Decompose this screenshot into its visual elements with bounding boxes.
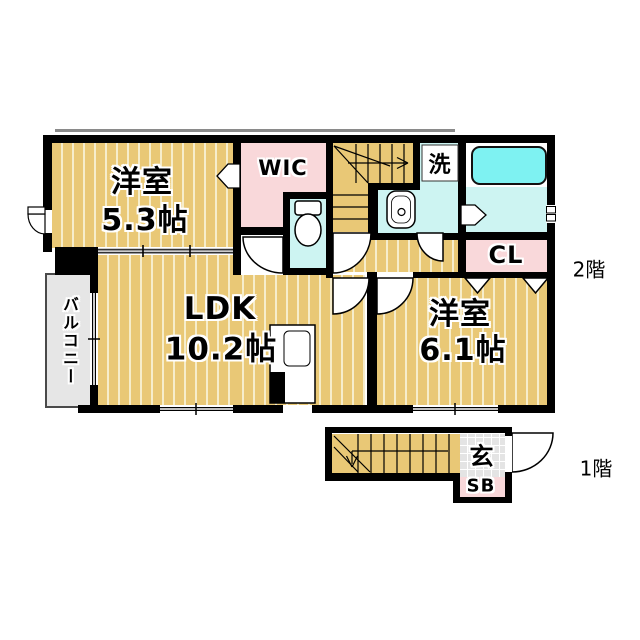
window-ldk-south <box>160 403 233 415</box>
ldk-size: 10.2帖 <box>165 324 278 369</box>
west-small-door <box>28 207 52 234</box>
plan-glyphs <box>0 0 640 640</box>
laundry-label: 洗 <box>428 147 451 179</box>
window-bedroom61-south <box>413 403 498 415</box>
washbasin-icon <box>387 191 415 228</box>
entrance-door-gap <box>505 436 512 472</box>
bathtub-icon <box>472 147 546 184</box>
door-arc-entrance <box>512 433 553 472</box>
toilet-icon <box>295 201 321 246</box>
ldk-name: LDK <box>184 291 257 327</box>
bedroom-5-3-size: 5.3帖 <box>101 195 188 239</box>
floor-plan: 洋室 5.3帖 WIC 洗 CL LDK 10.2帖 洋室 6.1帖 バルコニー… <box>0 0 640 640</box>
stairs-1f-icon <box>334 434 449 473</box>
entrance-genkan-label: 玄 <box>470 437 495 472</box>
door-arc-under-stairs <box>333 233 371 273</box>
door-arc-ldk <box>333 278 369 314</box>
second-floor-tag: 2階 <box>573 254 606 283</box>
bathroom-vent-window <box>546 205 556 223</box>
wic-opening-arrow-icon <box>217 164 240 188</box>
door-arc-bedroom61 <box>377 278 413 314</box>
window-balcony-door <box>88 293 100 385</box>
shoe-box-label: SB <box>467 476 496 497</box>
door-arc-washroom <box>417 233 443 261</box>
wic-label: WIC <box>258 156 307 180</box>
window-kitchen-south <box>283 405 312 413</box>
closet-cl-label: CL <box>489 241 524 269</box>
cl-folding-door-icon <box>523 278 548 293</box>
door-arc-toilet <box>243 237 283 273</box>
bathroom-opening-arrow-icon <box>461 205 486 225</box>
first-floor-tag: 1階 <box>580 453 613 482</box>
bedroom-6-1-size: 6.1帖 <box>419 325 506 369</box>
balcony-label: バルコニー <box>57 296 81 386</box>
sliding-door-partition <box>98 245 233 257</box>
